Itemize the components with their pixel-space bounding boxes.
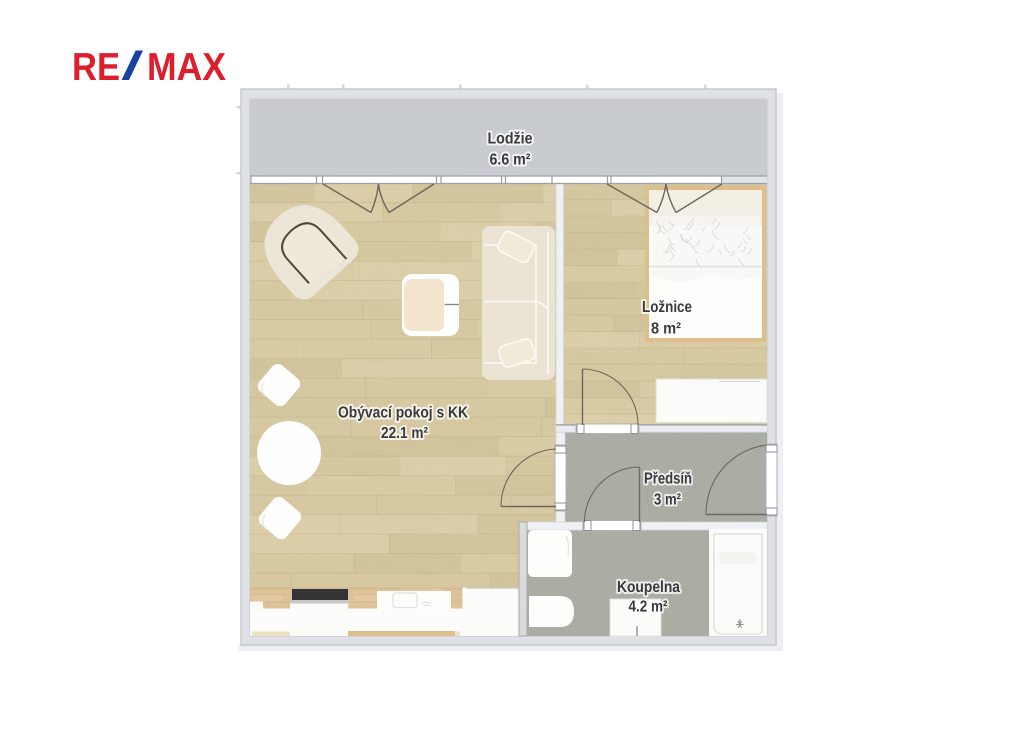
svg-text:22.1 m²: 22.1 m² <box>381 425 428 442</box>
svg-text:RE: RE <box>72 46 120 89</box>
svg-text:Předsíň: Předsíň <box>644 470 692 487</box>
svg-text:Obývací pokoj s KK: Obývací pokoj s KK <box>338 404 468 421</box>
svg-text:Ložnice: Ložnice <box>642 299 692 316</box>
svg-text:Koupelna: Koupelna <box>617 579 680 596</box>
svg-text:3 m²: 3 m² <box>654 491 681 508</box>
svg-text:6.6 m²: 6.6 m² <box>489 151 530 168</box>
svg-text:8 m²: 8 m² <box>651 320 681 337</box>
svg-text:4.2 m²: 4.2 m² <box>628 598 667 615</box>
svg-text:MAX: MAX <box>147 46 226 89</box>
svg-text:Lodžie: Lodžie <box>487 130 532 147</box>
